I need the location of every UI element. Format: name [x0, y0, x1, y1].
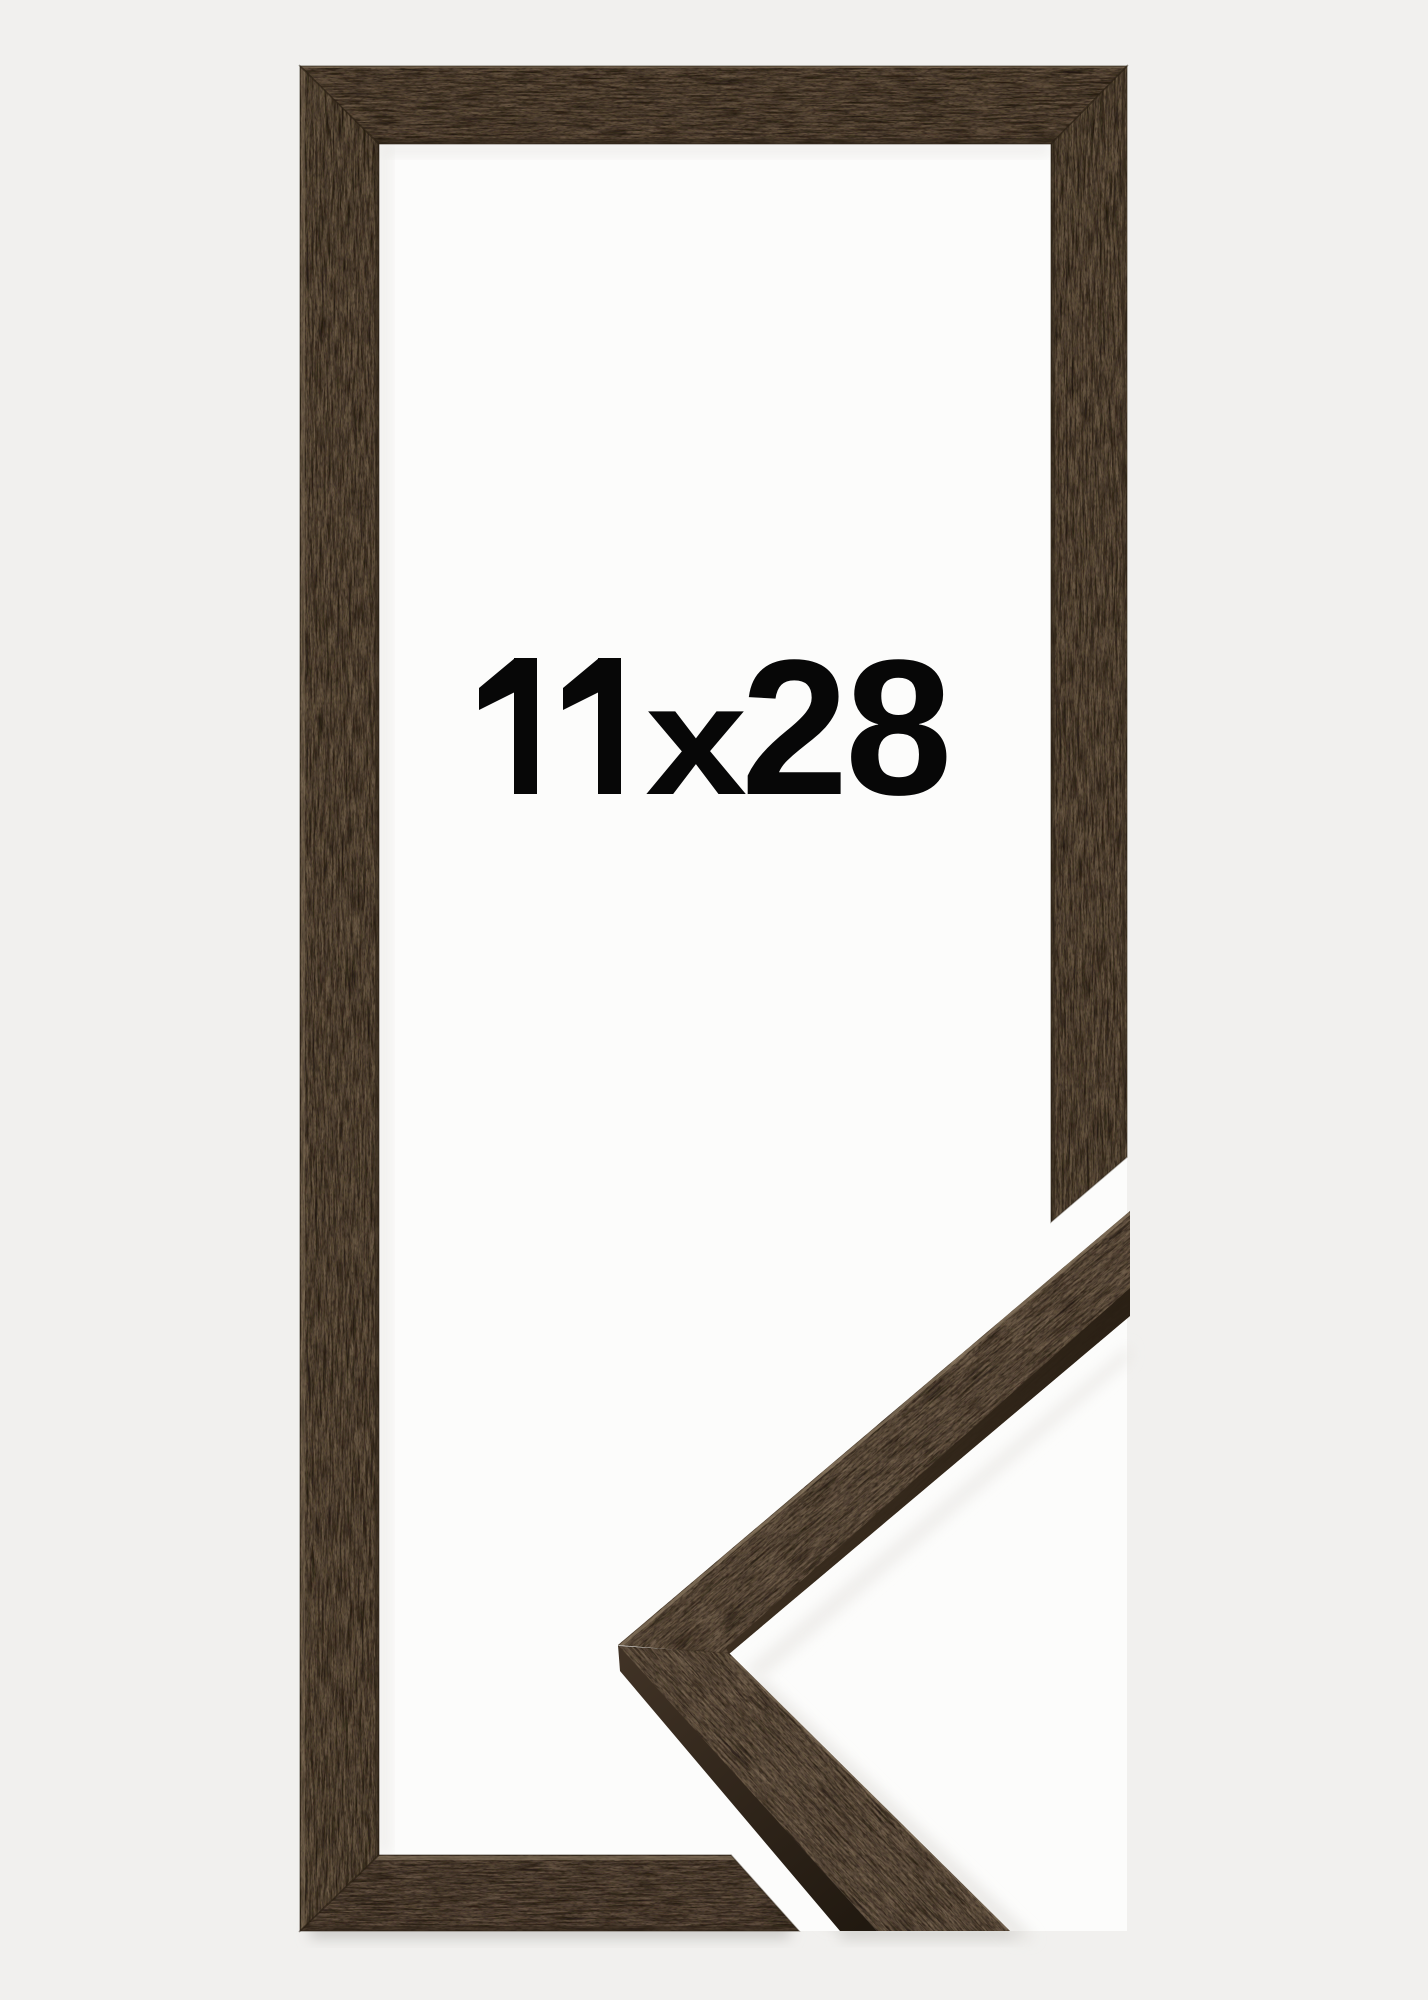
svg-text:8: 8: [845, 619, 952, 835]
svg-text:x: x: [645, 654, 747, 828]
svg-text:2: 2: [741, 619, 848, 835]
